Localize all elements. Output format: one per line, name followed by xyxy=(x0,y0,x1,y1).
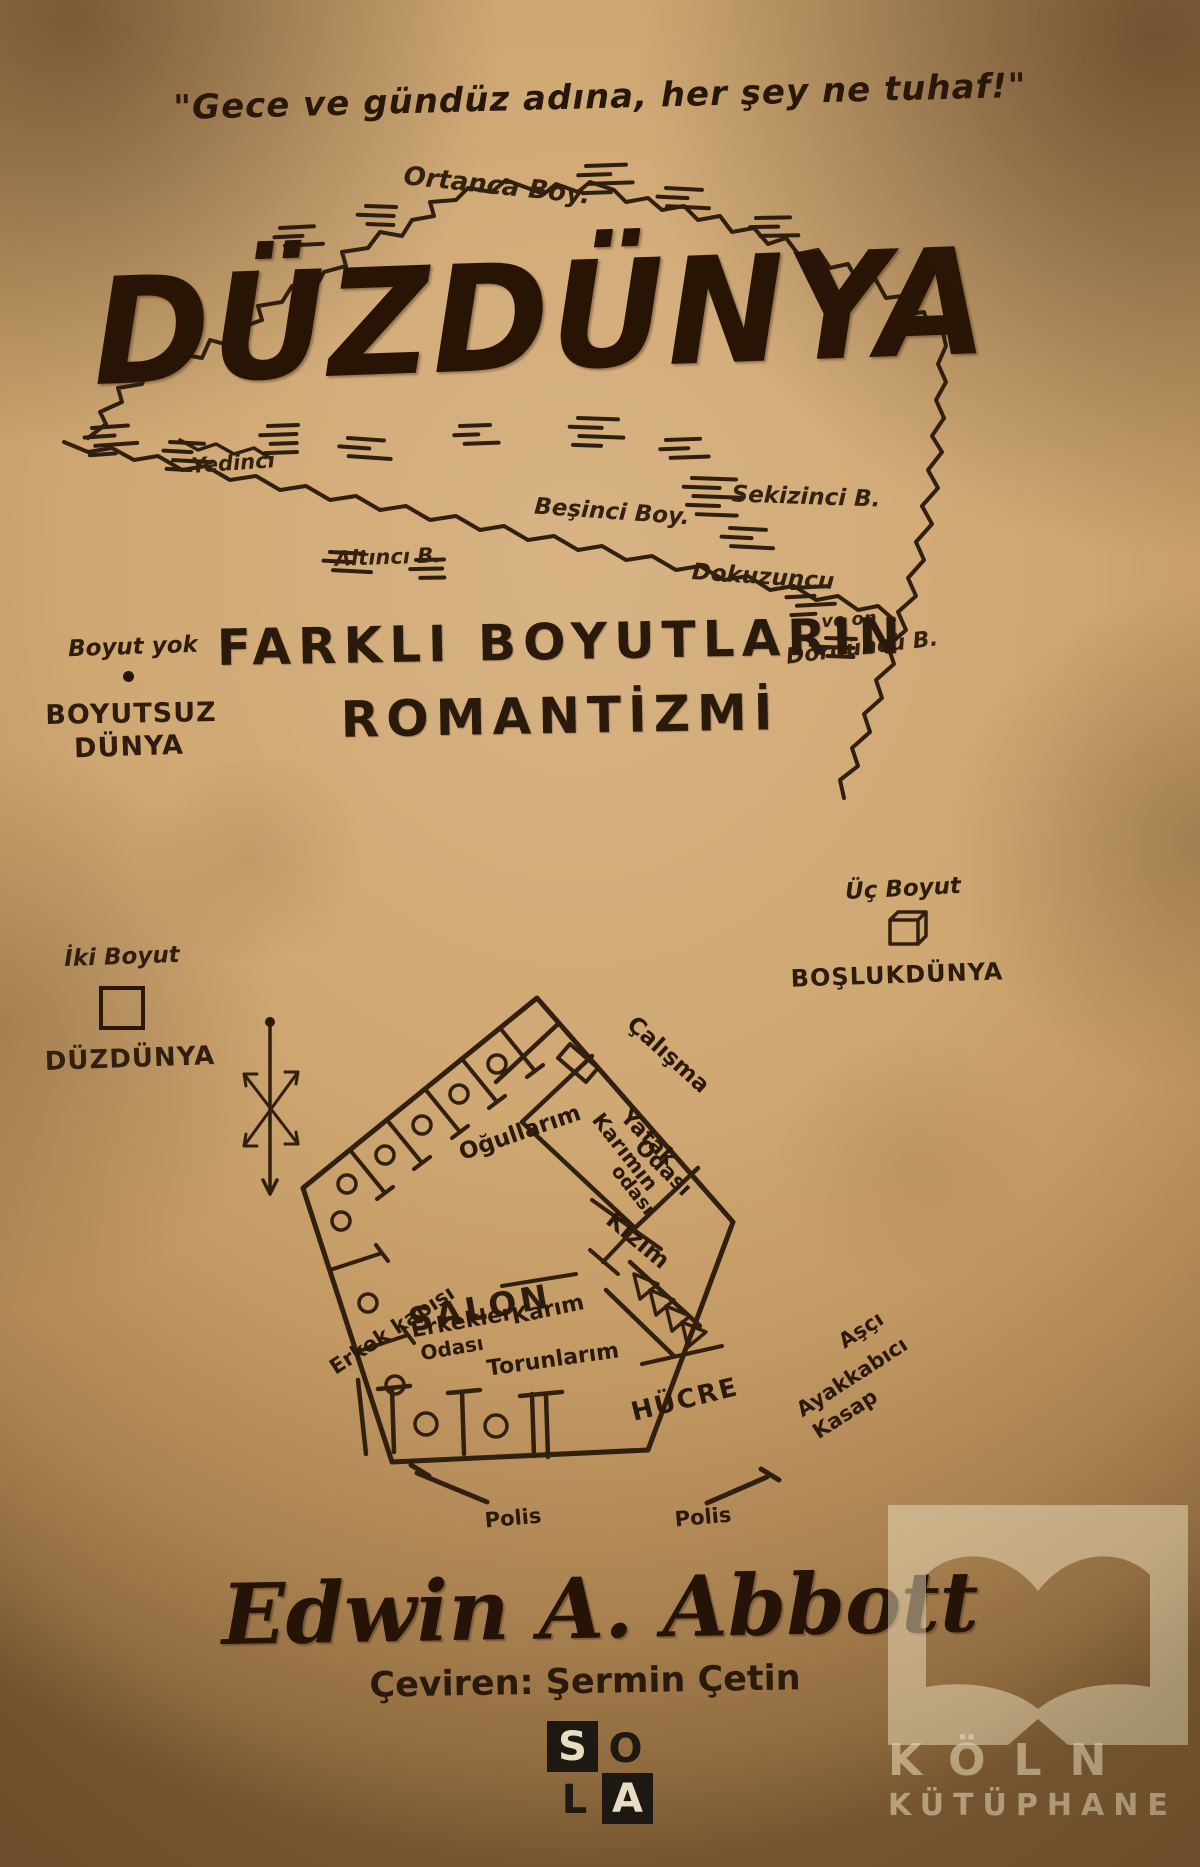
pentagon-house-plan xyxy=(240,960,900,1520)
cube-icon xyxy=(882,908,934,952)
square-icon xyxy=(99,986,145,1030)
zero-dim-name2: DÜNYA xyxy=(74,730,185,765)
author-name: Edwin A. Abbott xyxy=(221,1552,980,1664)
sola-letter-l: L xyxy=(549,1774,600,1825)
sola-letter-o: O xyxy=(600,1723,651,1774)
translator-credit: Çeviren: Şermin Çetin xyxy=(369,1658,801,1706)
label-police-right: Polis xyxy=(674,1503,733,1532)
watermark-kutuphane: KÜTÜPHANE xyxy=(888,1788,1177,1823)
map-label-sekizinci: Sekizinci B. xyxy=(731,481,881,512)
book-cover: { "quote": {"text": "\"Gece ve gündüz ad… xyxy=(0,0,1200,1867)
sola-letter-a: A xyxy=(602,1773,653,1824)
subtitle-line2: ROMANTİZMİ xyxy=(340,683,780,749)
open-book-icon xyxy=(888,1505,1188,1745)
watermark-koln: KÖLN xyxy=(888,1735,1134,1786)
zero-dim-caption: Boyut yok xyxy=(68,632,199,663)
zero-dim-name1: BOYUTSUZ xyxy=(45,697,217,731)
point-icon xyxy=(123,671,134,682)
cover-title: DÜZDÜNYA xyxy=(90,217,991,420)
publisher-logo-sola: S O L A xyxy=(547,1721,653,1825)
label-police-left: Polis xyxy=(484,1504,543,1533)
two-dim-name: DÜZDÜNYA xyxy=(44,1041,215,1077)
map-label-altinci: Altıncı B. xyxy=(334,543,441,571)
sola-letter-s: S xyxy=(547,1721,598,1772)
subtitle-line1: FARKLI BOYUTLARIN xyxy=(216,607,907,677)
two-dim-caption: İki Boyut xyxy=(64,942,180,972)
